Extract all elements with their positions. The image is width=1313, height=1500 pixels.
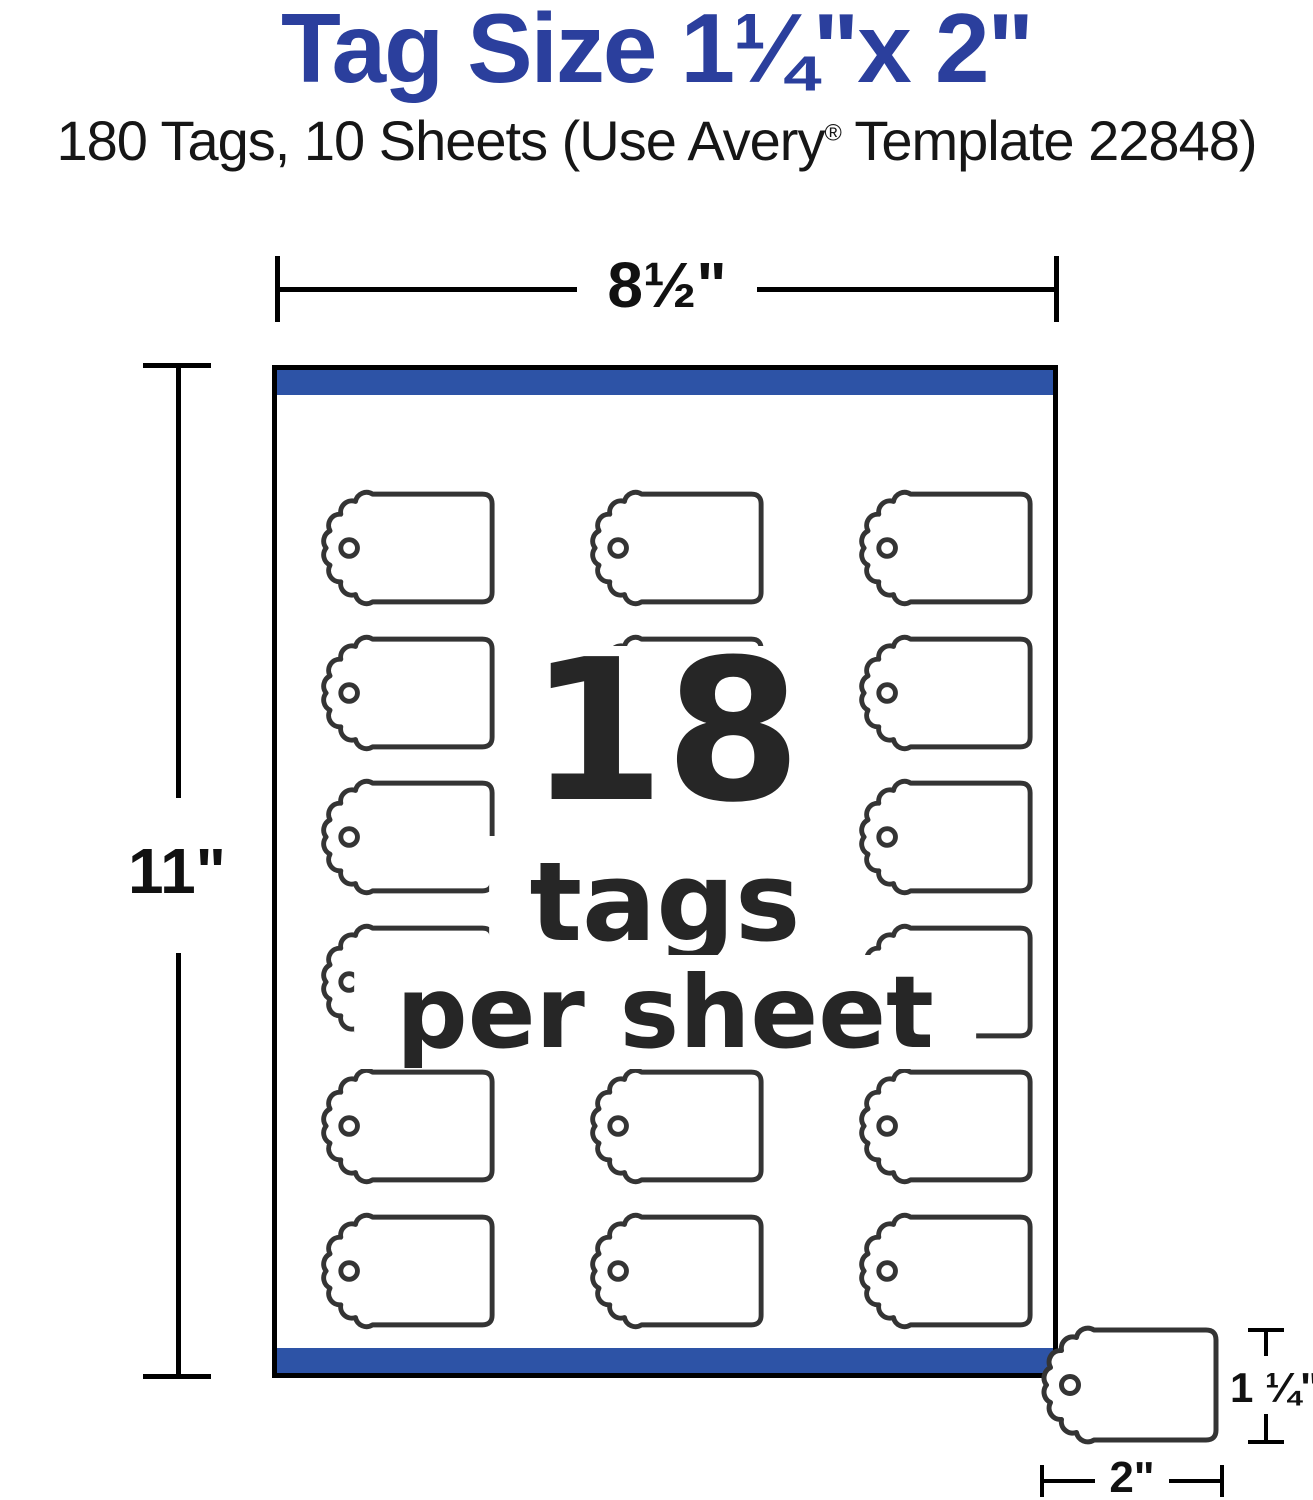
dimension-tick-right [1054,256,1059,322]
page-title: Tag Size 1¼"x 2" [0,0,1313,105]
tag-outline-icon [577,1211,767,1331]
tag-count-unit-line2: per sheet [354,955,976,1069]
tags-per-sheet-callout: 18 tags per sheet [354,646,976,1069]
sample-tag-outline-icon [1028,1324,1222,1446]
tag-outline-icon [577,488,767,608]
tag-count-unit-line1: tags [489,836,840,965]
dimension-line [1044,1479,1095,1483]
dimension-line [280,287,577,292]
tag-row [308,488,1036,608]
tag-height-line-upper [1264,1328,1268,1356]
height-dimension-line-upper [176,363,181,798]
page-subtitle: 180 Tags, 10 Sheets (Use Avery® Template… [0,108,1313,173]
tag-outline-icon [308,1066,498,1186]
height-dimension-line-lower [176,953,181,1378]
tag-width-label: 2" [1095,1453,1168,1500]
height-dimension-tick-bottom [143,1374,211,1379]
tag-outline-icon [308,1211,498,1331]
tag-outline-icon [846,1066,1036,1186]
tag-outline-icon [577,1066,767,1186]
sheet-height-label: 11" [104,834,250,908]
tag-row [308,1211,1036,1331]
subtitle-text: 180 Tags, 10 Sheets (Use Avery [56,109,824,172]
tag-height-line-lower [1264,1414,1268,1442]
tag-height-tick-bottom [1248,1440,1284,1444]
sheet-top-blue-strip [277,370,1053,395]
tag-outline-icon [846,488,1036,608]
tag-count: 18 [501,646,830,842]
dimension-line [1169,1479,1220,1483]
sheet-diagram: 18 tags per sheet [272,365,1058,1378]
dimension-tick-right [1220,1465,1224,1497]
dimension-line [757,287,1054,292]
registered-trademark-symbol: ® [824,119,840,145]
product-diagram: Tag Size 1¼"x 2" 180 Tags, 10 Sheets (Us… [0,0,1313,1500]
tag-width-dimension: 2" [1040,1464,1224,1498]
sheet-width-dimension: 8½" [275,256,1059,322]
tag-height-label: 1 ¼" [1230,1364,1313,1412]
subtitle-text-end: Template 22848) [841,109,1257,172]
tag-outline-icon [846,1211,1036,1331]
tag-outline-icon [308,488,498,608]
sheet-width-label: 8½" [577,248,756,322]
tag-row [308,1066,1036,1186]
